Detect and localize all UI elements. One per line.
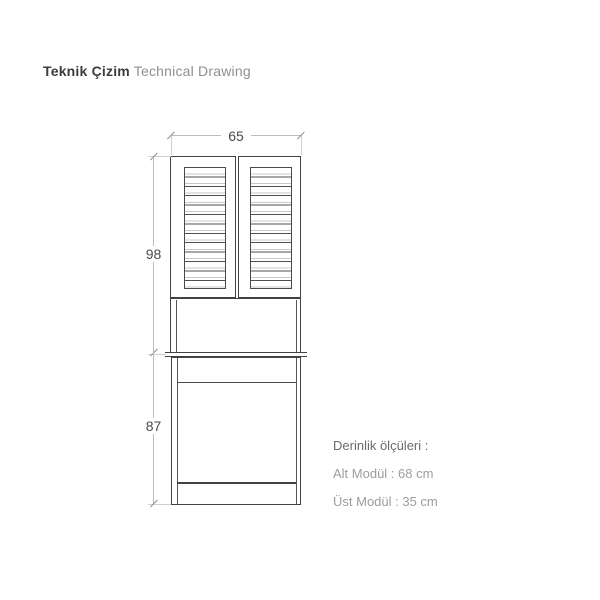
page-title-secondary: Technical Drawing [134, 63, 251, 79]
depth-alt-module: Alt Modül : 68 cm [333, 466, 433, 481]
dimension-upper-height-value: 98 [139, 246, 168, 262]
page-title-primary: Teknik Çizim [43, 63, 130, 79]
page-title: Teknik Çizim Technical Drawing [43, 63, 251, 79]
left-louver-panel [184, 167, 226, 289]
open-compartment-left-wall [176, 300, 177, 352]
depth-heading: Derinlik ölçüleri : [333, 438, 428, 453]
depth-ust-module: Üst Modül : 35 cm [333, 494, 438, 509]
lower-module-plinth-line [177, 482, 296, 484]
technical-drawing-page: Teknik Çizim Technical Drawing 65 [0, 0, 600, 600]
dimension-width-value: 65 [221, 128, 251, 144]
dimension-width-extension-left [171, 135, 172, 155]
right-louver-panel [250, 167, 292, 289]
lower-module-top-rail [177, 382, 296, 383]
dimension-width-extension-right [301, 135, 302, 155]
open-compartment [170, 298, 301, 352]
open-compartment-right-wall [296, 300, 297, 352]
dimension-lower-height-value: 87 [139, 418, 168, 434]
